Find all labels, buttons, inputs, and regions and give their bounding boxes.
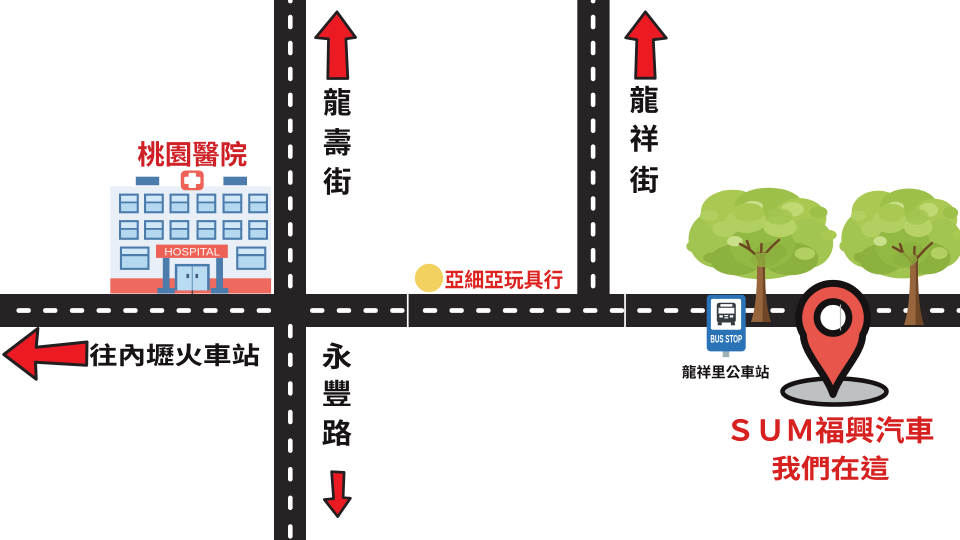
svg-text:BUS STOP: BUS STOP bbox=[710, 334, 742, 346]
svg-text:HOSPITAL: HOSPITAL bbox=[164, 246, 220, 258]
